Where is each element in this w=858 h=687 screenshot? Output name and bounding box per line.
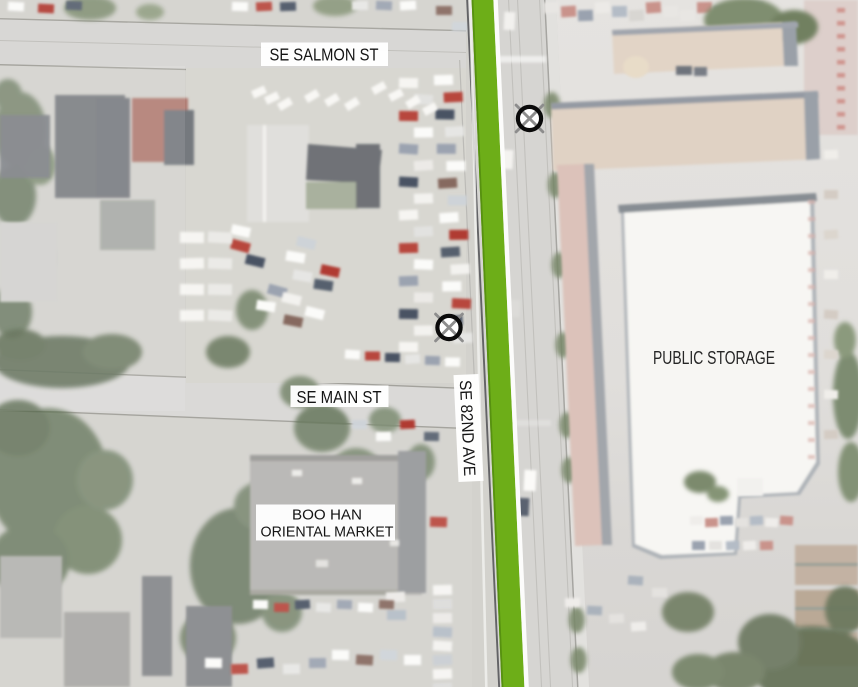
- svg-text:BOO HAN: BOO HAN: [292, 507, 362, 524]
- svg-text:SE MAIN ST: SE MAIN ST: [297, 387, 382, 407]
- svg-text:PUBLIC STORAGE: PUBLIC STORAGE: [653, 348, 775, 368]
- svg-text:SE SALMON ST: SE SALMON ST: [270, 45, 379, 65]
- svg-text:ORIENTAL MARKET: ORIENTAL MARKET: [261, 524, 394, 541]
